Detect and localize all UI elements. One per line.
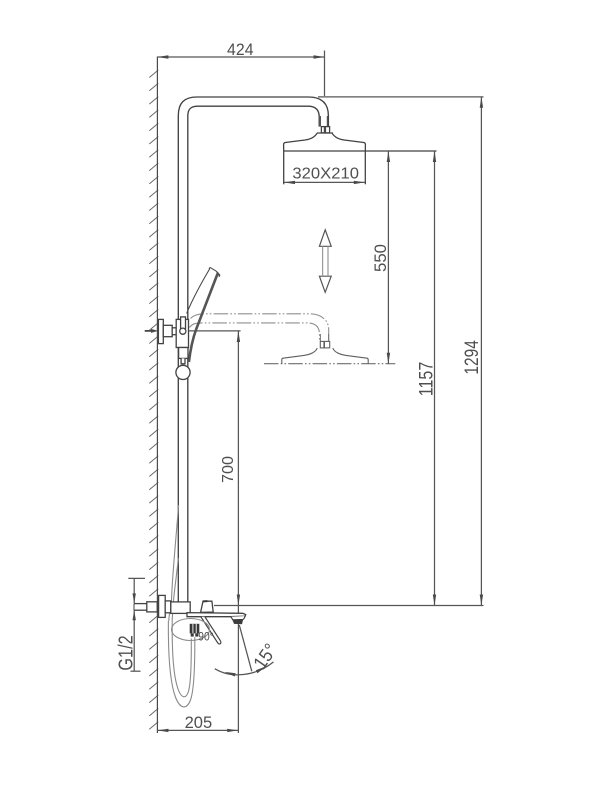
svg-text:320X210: 320X210	[292, 165, 359, 182]
svg-text:700: 700	[220, 456, 237, 483]
svg-text:G1/2: G1/2	[115, 635, 137, 670]
svg-text:90°: 90°	[198, 629, 214, 643]
svg-text:1157: 1157	[416, 362, 437, 397]
svg-text:205: 205	[185, 713, 213, 732]
svg-text:424: 424	[227, 40, 254, 59]
svg-text:550: 550	[371, 244, 390, 272]
svg-text:1294: 1294	[462, 340, 483, 375]
